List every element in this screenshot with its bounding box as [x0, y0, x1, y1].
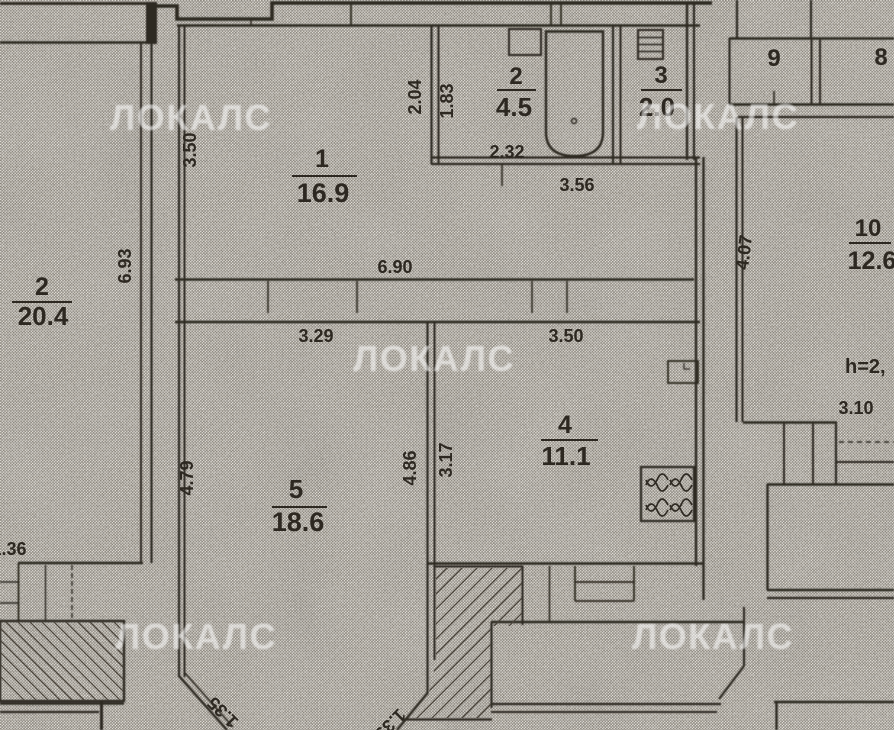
svg-text:11.1: 11.1	[541, 441, 590, 471]
svg-text:ЛОКАЛС: ЛОКАЛС	[115, 616, 277, 657]
svg-text:2.04: 2.04	[405, 79, 425, 114]
svg-text:4.07: 4.07	[732, 234, 756, 271]
svg-text:12.6: 12.6	[848, 247, 894, 275]
svg-text:4.79: 4.79	[177, 460, 197, 495]
svg-text:ЛОКАЛС: ЛОКАЛС	[632, 616, 794, 657]
svg-text:20.4: 20.4	[18, 301, 69, 331]
svg-text:1.83: 1.83	[437, 83, 457, 118]
svg-text:3.17: 3.17	[436, 442, 456, 477]
svg-text:9: 9	[767, 45, 780, 72]
svg-text:2: 2	[509, 63, 522, 90]
svg-text:3: 3	[654, 62, 667, 89]
svg-text:ЛОКАЛС: ЛОКАЛС	[637, 96, 799, 137]
svg-text:ЛОКАЛС: ЛОКАЛС	[353, 338, 515, 379]
svg-text:1: 1	[315, 145, 329, 173]
svg-text:3.50: 3.50	[548, 326, 583, 346]
svg-text:2: 2	[35, 273, 49, 301]
svg-text:3.56: 3.56	[559, 175, 594, 195]
svg-text:5: 5	[289, 474, 303, 504]
svg-text:10: 10	[855, 215, 882, 242]
svg-text:3.10: 3.10	[838, 398, 873, 418]
svg-text:18.6: 18.6	[272, 507, 325, 537]
svg-text:6.93: 6.93	[115, 248, 135, 283]
svg-text:h=2,: h=2,	[845, 356, 886, 378]
svg-text:16.9: 16.9	[297, 178, 350, 208]
svg-text:1.36: 1.36	[0, 539, 27, 559]
svg-text:6.90: 6.90	[377, 257, 412, 277]
svg-text:8: 8	[874, 44, 887, 71]
svg-text:4.86: 4.86	[400, 450, 420, 485]
svg-text:3.29: 3.29	[298, 326, 333, 346]
svg-text:2.32: 2.32	[489, 142, 524, 162]
svg-text:ЛОКАЛС: ЛОКАЛС	[110, 97, 272, 138]
svg-text:4: 4	[558, 411, 572, 439]
svg-text:4.5: 4.5	[496, 92, 532, 122]
